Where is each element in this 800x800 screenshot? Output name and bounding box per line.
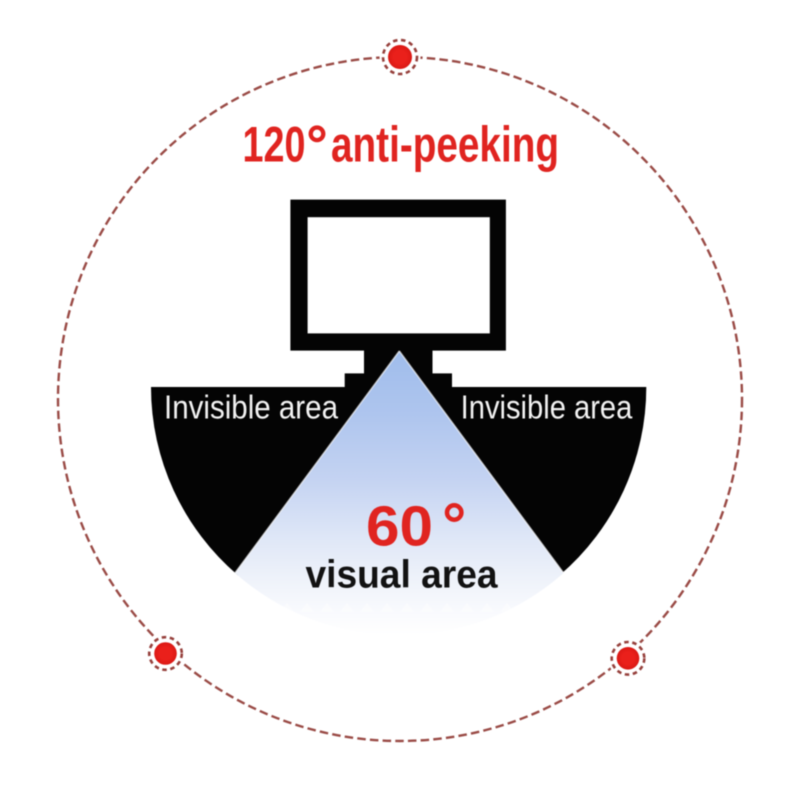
svg-text:Invisible area: Invisible area [164,389,339,426]
svg-text:120: 120 [243,117,306,173]
svg-text:60: 60 [366,494,433,558]
svg-text:Invisible area: Invisible area [461,389,633,426]
svg-text:anti-peeking: anti-peeking [331,117,559,173]
svg-text:visual area: visual area [306,554,498,597]
